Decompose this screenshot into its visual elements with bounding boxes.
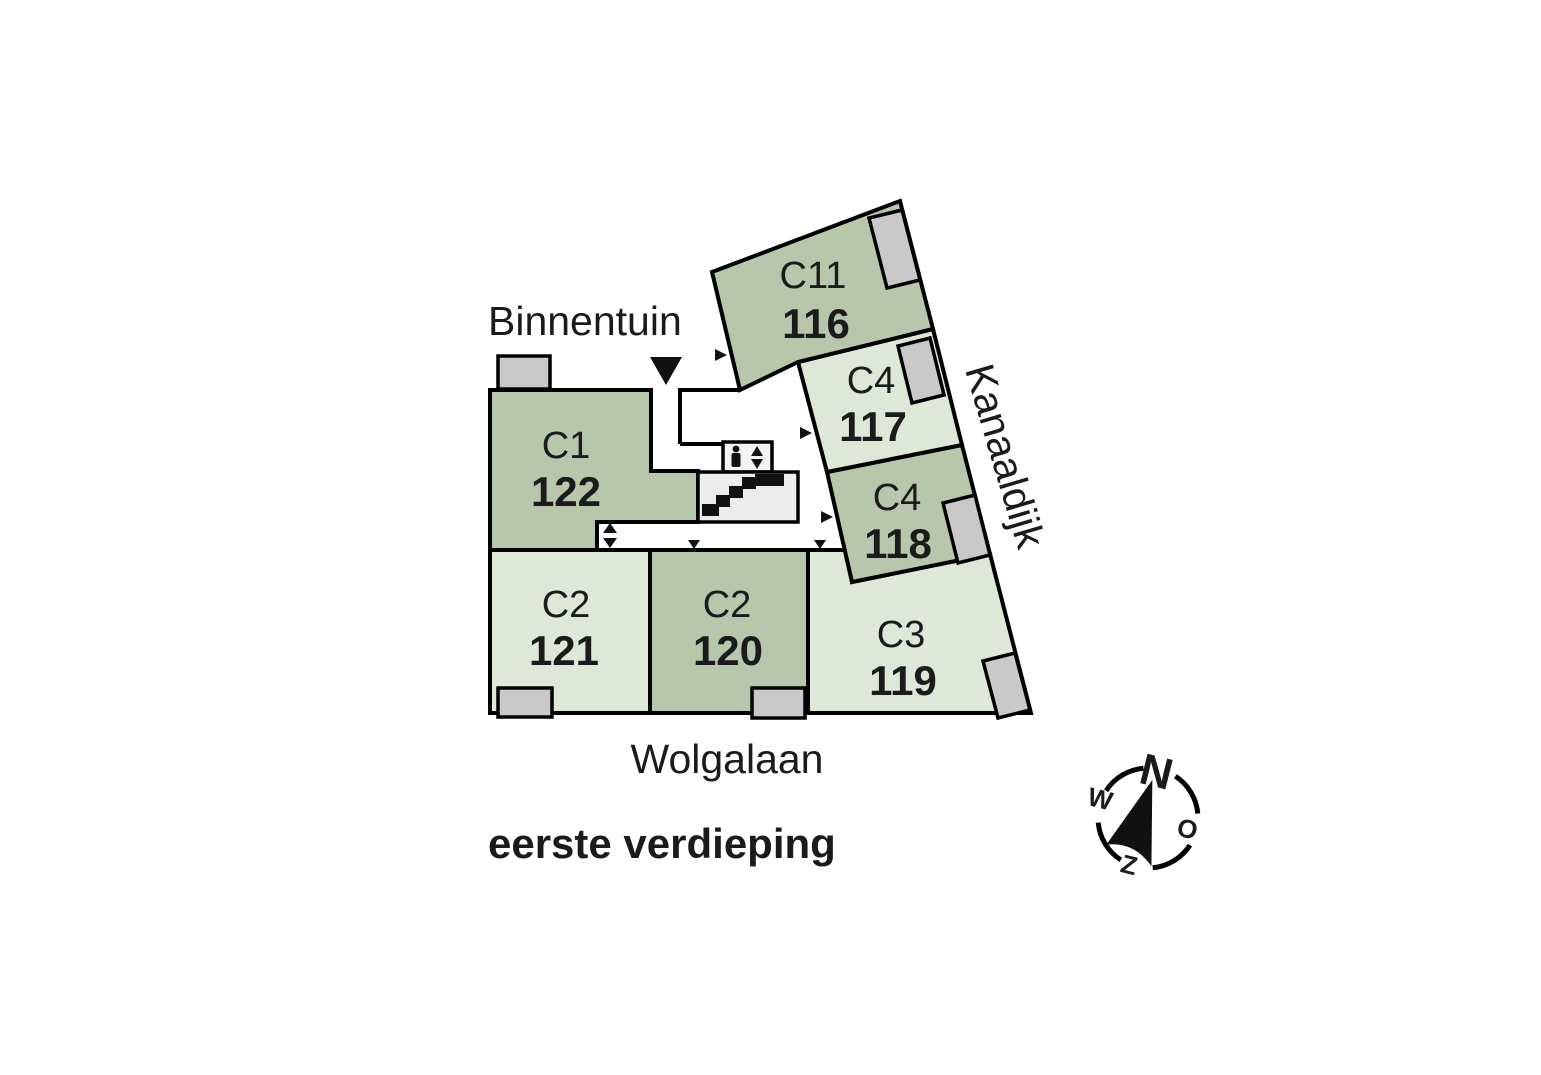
person-icon	[733, 446, 740, 453]
balcony-120	[752, 688, 805, 718]
unit-117-number-label: 117	[839, 403, 907, 450]
stair-step	[716, 495, 730, 507]
unit-117-type-label: C4	[847, 360, 896, 402]
unit-120-number-label: 120	[693, 627, 763, 674]
stair-step	[742, 477, 756, 489]
unit-119-type-label: C3	[877, 614, 926, 656]
unit-120-type-label: C2	[703, 584, 752, 626]
floor-title: eerste verdieping	[488, 820, 836, 867]
background	[0, 0, 1541, 1075]
unit-121-type-label: C2	[542, 584, 591, 626]
unit-121-number-label: 121	[529, 627, 599, 674]
floorplan-canvas: C1 122 C2 121 C2 120 C3 119 C4 118 C4 11…	[0, 0, 1541, 1075]
street-label-binnentuin: Binnentuin	[488, 298, 682, 344]
balcony-121	[498, 688, 552, 717]
unit-122-type-label: C1	[542, 425, 591, 467]
stair-step	[729, 486, 743, 498]
unit-116-type-label: C11	[780, 255, 847, 297]
unit-118-number-label: 118	[864, 520, 932, 567]
unit-118-type-label: C4	[873, 477, 922, 519]
floorplan-page: C1 122 C2 121 C2 120 C3 119 C4 118 C4 11…	[0, 0, 1541, 1075]
person-body-icon	[732, 453, 741, 467]
unit-122-number-label: 122	[531, 468, 601, 515]
stair-step	[755, 474, 784, 486]
elevator	[723, 442, 772, 472]
street-label-wolgalaan: Wolgalaan	[631, 736, 824, 782]
unit-119-number-label: 119	[869, 657, 937, 704]
unit-116-number-label: 116	[782, 300, 850, 347]
stairwell	[698, 472, 798, 522]
balcony-122	[498, 356, 550, 389]
elevator-shaft	[723, 442, 772, 472]
